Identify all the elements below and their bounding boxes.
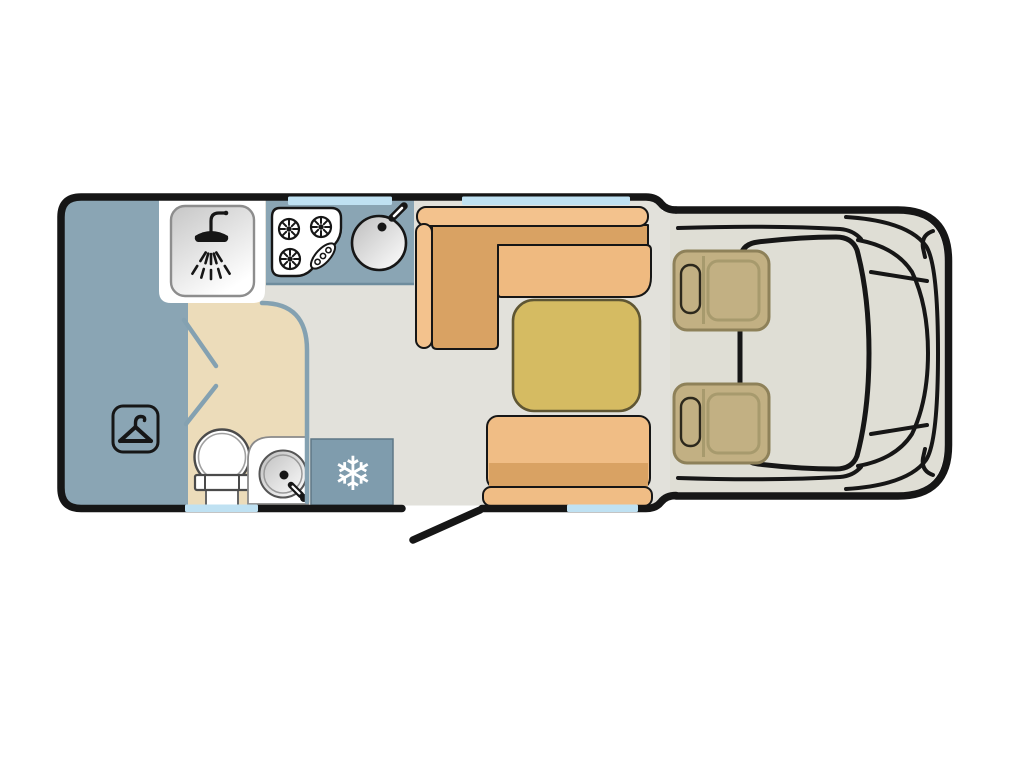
shower-cubicle <box>159 198 265 303</box>
window-bench <box>567 505 638 513</box>
motorhome-floorplan: ❄ <box>0 0 1024 768</box>
fridge: ❄ <box>311 439 393 505</box>
window-kitchen <box>288 197 392 206</box>
bench-seat <box>483 416 652 506</box>
window-bathroom <box>185 505 258 513</box>
window-lounge <box>462 197 630 206</box>
snowflake-icon: ❄ <box>333 447 372 502</box>
driver-seat <box>674 251 769 330</box>
table <box>513 300 640 411</box>
washbasin-unit <box>248 437 308 504</box>
floorplan-canvas: ❄ <box>0 0 1024 768</box>
passenger-seat <box>674 384 769 463</box>
entry-door <box>413 510 480 540</box>
